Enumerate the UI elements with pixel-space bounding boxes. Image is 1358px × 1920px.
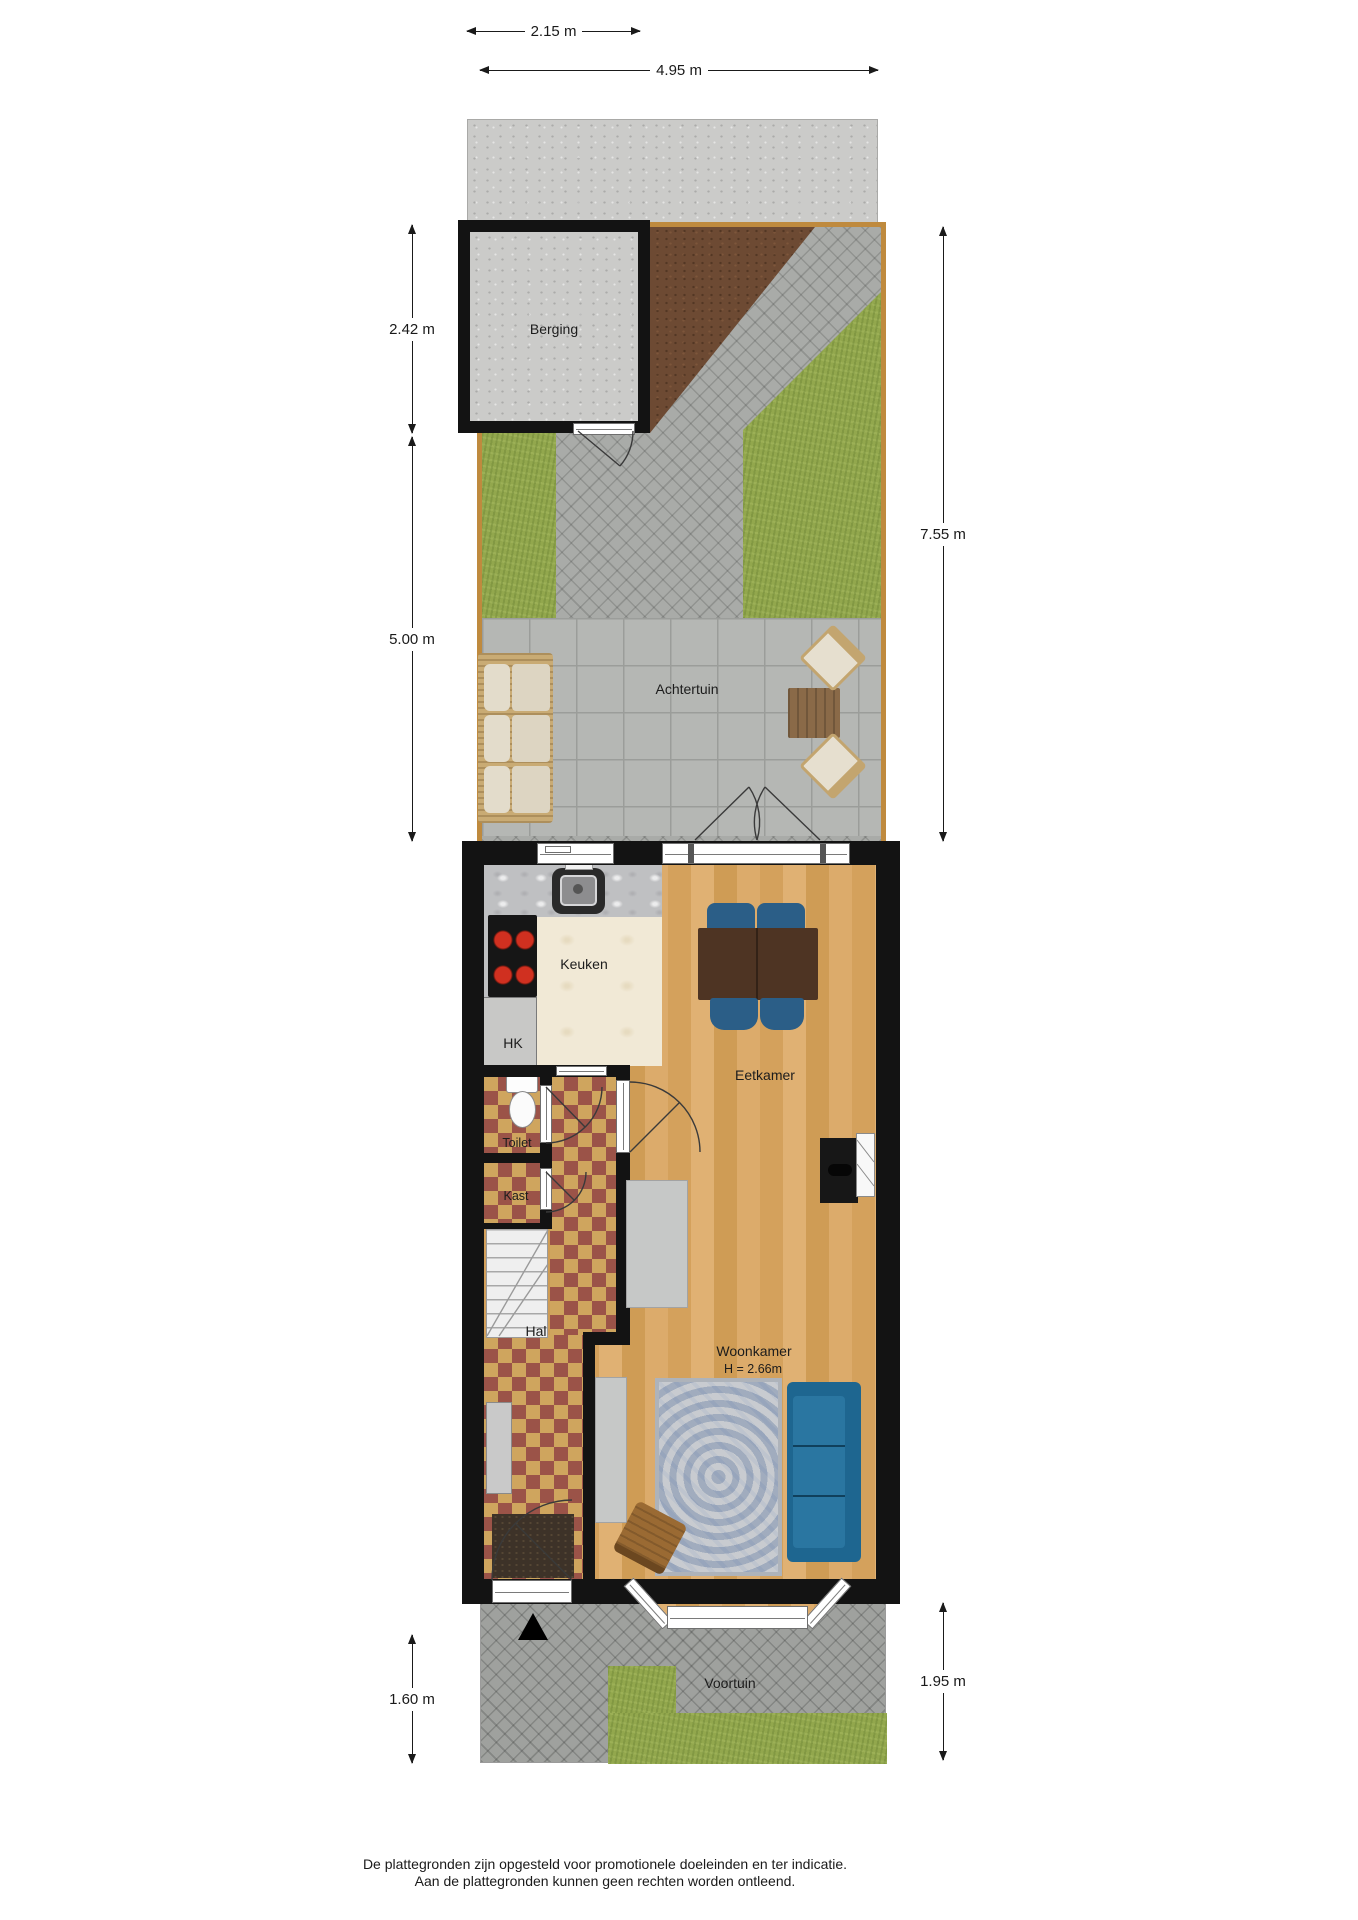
dim-line (943, 1603, 944, 1670)
dim-text: 2.15 m (531, 23, 577, 40)
dim-text: 4.95 m (656, 62, 702, 79)
room-label-hall: Hal (525, 1323, 546, 1339)
dim-line (943, 227, 944, 523)
room-label-back-garden: Achtertuin (655, 681, 718, 697)
door-swing-arcs (0, 0, 1358, 1920)
dim-garden-left-depth: 5.00 m (386, 437, 438, 841)
dim-line (412, 1711, 413, 1764)
room-label-closet: Kast (503, 1189, 528, 1203)
dim-line (582, 31, 640, 32)
room-label-utility: HK (503, 1035, 522, 1051)
dim-text: 7.55 m (920, 526, 966, 543)
room-label-front-garden: Voortuin (704, 1675, 755, 1691)
dim-garden-right-depth: 7.55 m (917, 227, 969, 841)
disclaimer: De plattegronden zijn opgesteld voor pro… (200, 1856, 1010, 1890)
disclaimer-line-1: De plattegronden zijn opgesteld voor pro… (200, 1856, 1010, 1873)
dim-line (412, 1635, 413, 1688)
room-label-dining: Eetkamer (735, 1067, 795, 1083)
room-label-kitchen: Keuken (560, 956, 607, 972)
dim-text: 5.00 m (389, 631, 435, 648)
dim-line (412, 651, 413, 842)
dim-garden-width: 4.95 m (480, 61, 878, 79)
room-label-living: Woonkamer (716, 1343, 791, 1359)
dim-line (412, 225, 413, 318)
dim-shed-depth: 2.42 m (386, 225, 438, 433)
room-label-living-height: H = 2.66m (724, 1362, 782, 1376)
dim-text: 2.42 m (389, 321, 435, 338)
dim-front-garden-left: 1.60 m (386, 1635, 438, 1763)
dim-line (412, 341, 413, 434)
room-label-shed: Berging (530, 321, 578, 337)
dim-text: 1.95 m (920, 1673, 966, 1690)
dim-line (480, 70, 650, 71)
dim-shed-width: 2.15 m (467, 22, 640, 40)
dim-line (412, 437, 413, 628)
floorplan-page: Berging Achtertuin Keuken HK Toilet Kast… (0, 0, 1358, 1920)
dim-line (943, 1693, 944, 1760)
dim-text: 1.60 m (389, 1691, 435, 1708)
room-label-toilet: Toilet (502, 1136, 531, 1150)
dim-front-garden-right: 1.95 m (917, 1603, 969, 1760)
disclaimer-line-2: Aan de plattegronden kunnen geen rechten… (200, 1873, 1010, 1890)
dim-line (467, 31, 525, 32)
dim-line (943, 546, 944, 842)
dim-line (708, 70, 878, 71)
